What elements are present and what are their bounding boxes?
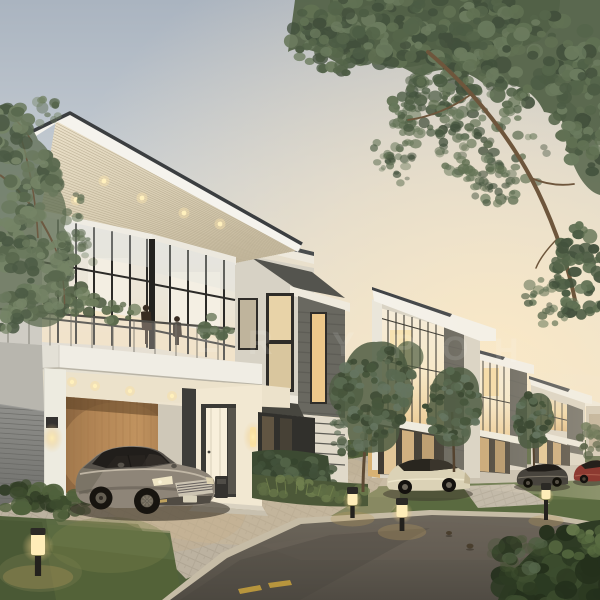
svg-text:E: E [196,322,219,360]
svg-text:Y: Y [332,326,355,364]
svg-text:P: P [392,328,415,366]
svg-text:O: O [442,330,468,368]
svg-text:H: H [494,332,519,370]
svg-text:R: R [248,324,273,362]
